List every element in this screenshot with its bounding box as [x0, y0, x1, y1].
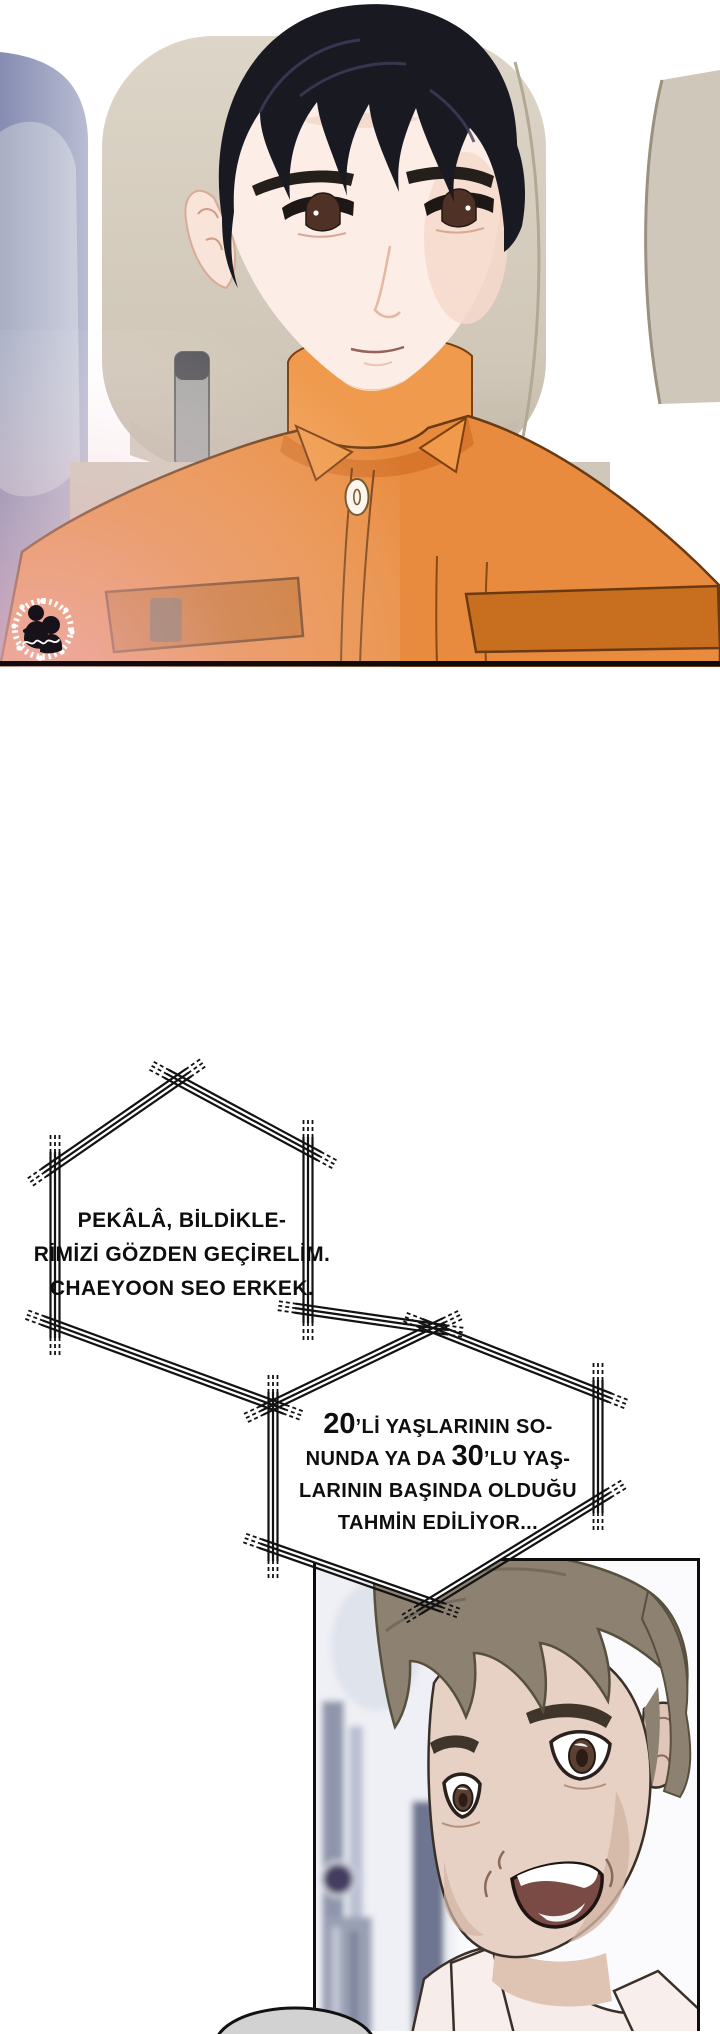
- street-sign: [321, 1862, 355, 1896]
- car-scene-art: [0, 0, 720, 667]
- comic-page: PEKÂLÂ, BİLDİKLE- RİMİZİ GÖZDEN GEÇİRELİ…: [0, 0, 720, 2034]
- gray-bubble-peek: [210, 2004, 380, 2034]
- right-seat: [646, 70, 720, 404]
- panel1-bottom-border: [0, 661, 720, 666]
- couple-silhouette-lace-wreath-watermark: [10, 596, 76, 662]
- bubble2-line2: NUNDA YA DA 30’LU YAŞ-: [299, 1443, 577, 1475]
- bubble1-line1: PEKÂLÂ, BİLDİKLE-: [34, 1204, 331, 1238]
- bubble1-line2: RİMİZİ GÖZDEN GEÇİRELİM.: [34, 1238, 331, 1272]
- speech-bubble-2-text: 20’Lİ YAŞLARININ SO- NUNDA YA DA 30’LU Y…: [299, 1411, 577, 1539]
- bubble2-line4: TAHMİN EDİLİYOR...: [299, 1507, 577, 1539]
- age-20: 20: [323, 1408, 355, 1440]
- age-30: 30: [452, 1440, 484, 1472]
- panel-car-scene: [0, 0, 720, 667]
- couple-silhouette: [24, 605, 62, 653]
- bubble1-line3: CHAEYOON SEO ERKEK.: [34, 1272, 331, 1306]
- bubble2-line1: 20’Lİ YAŞLARININ SO-: [299, 1411, 577, 1443]
- bubble2-line3: LARININ BAŞINDA OLDUĞU: [299, 1475, 577, 1507]
- speech-bubble-1-text: PEKÂLÂ, BİLDİKLE- RİMİZİ GÖZDEN GEÇİRELİ…: [34, 1204, 331, 1306]
- chest-band-right: [466, 586, 720, 652]
- hexagon-speech-bubbles: [0, 1040, 720, 1680]
